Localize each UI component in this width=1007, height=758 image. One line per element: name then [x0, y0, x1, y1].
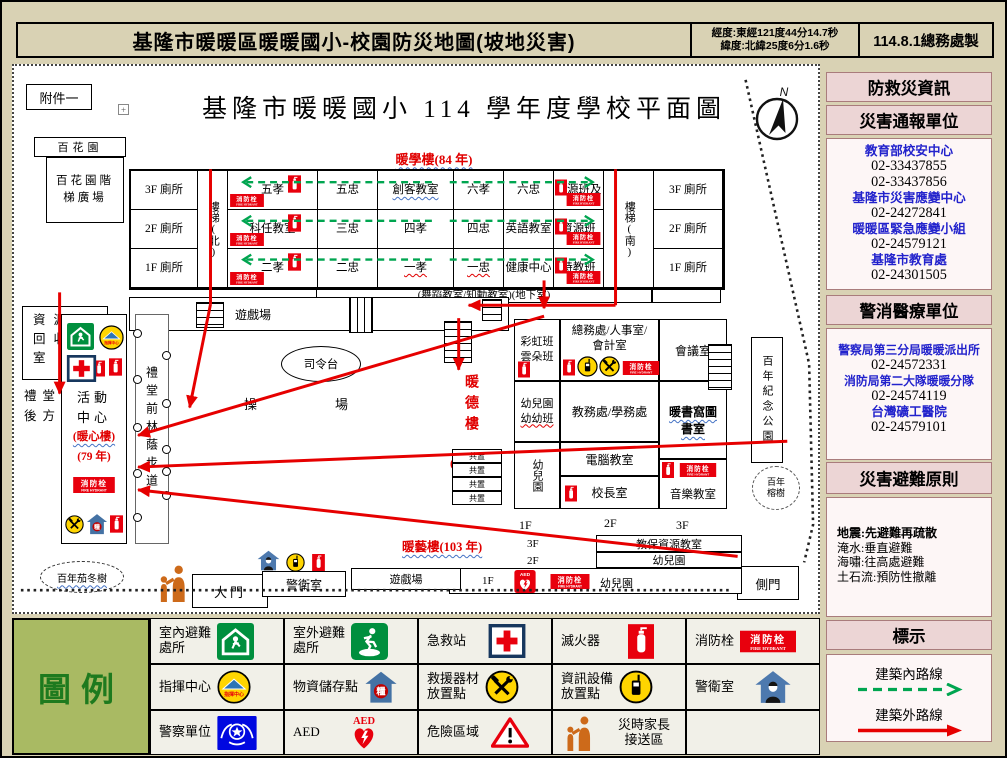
svg-text:FIRE HYDRANT: FIRE HYDRANT [236, 243, 258, 246]
indoor-route-icon [854, 683, 964, 696]
svg-text:FIRE HYDRANT: FIRE HYDRANT [750, 647, 787, 652]
info-equipment-icon [577, 356, 598, 377]
fire-hydrant-icon: 消防栓FIRE HYDRANT [549, 574, 591, 589]
legend-item: 消防栓消防栓FIRE HYDRANT [686, 618, 820, 664]
legend-item: 災時家長 接送區 [552, 710, 686, 755]
outdoor-shelter-icon [351, 623, 388, 660]
legend-label: 消防栓 [695, 634, 734, 649]
contact-phone: 02-24574119 [827, 389, 991, 405]
hall-back-line: 禮堂 [24, 386, 61, 406]
header-bar: 基隆市暖暖區暖暖國小-校園防災地圖(坡地災害) 經度:東經121度44分14.7… [16, 22, 994, 58]
room-box: 總務處/人事室/會計室 消防栓FIRE HYDRANT [560, 319, 659, 381]
legend-label: 室內避難 處所 [159, 626, 211, 655]
fire-extinguisher-icon [518, 361, 530, 378]
contact-name: 基隆市教育處 [827, 253, 991, 268]
stairs-icon [196, 302, 224, 328]
svg-text:FIRE HYDRANT: FIRE HYDRANT [236, 204, 258, 207]
activity-center-label: 中心 [62, 407, 126, 426]
stairs-icon [349, 297, 373, 333]
contact-name: 消防局第二大隊暖暖分隊 [827, 374, 991, 389]
legend-item: 滅火器 [552, 618, 686, 664]
fire-hydrant-icon: 消防栓FIRE HYDRANT [230, 194, 264, 207]
contact-name: 警察局第三分局暖暖派出所 [827, 343, 991, 358]
legend-item: AEDAED [284, 710, 418, 755]
room-label: 音樂教室 [660, 486, 726, 502]
principle-item: 淹水:垂直避難 [827, 541, 991, 556]
principle-item: 海嘯:往高處避難 [827, 555, 991, 570]
room-cell: 1F 廁所 [654, 249, 723, 288]
room-cell: 特教班 消防栓FIRE HYDRANT [554, 249, 604, 288]
fire-extinguisher-icon [109, 358, 122, 376]
fire-extinguisher-icon [565, 485, 577, 502]
svg-text:AED: AED [353, 716, 376, 727]
flower-garden-steps-label: 百花園階梯廣場 [46, 157, 124, 223]
outdoor-route-icon [854, 724, 964, 737]
side-gate-label: 側門 [737, 566, 799, 600]
room-box: 教務處/學務處 [560, 381, 659, 442]
building-nuanxue-label: 暖學樓(84 年) [364, 150, 504, 166]
supply-point-icon: 糧 [364, 670, 398, 704]
floor-label-3f: 3F [676, 518, 689, 533]
room-box: 校長室 [560, 476, 659, 509]
fire-extinguisher-icon [312, 554, 325, 571]
route-inside-label: 建築內路線 [827, 663, 991, 683]
page-frame: 基隆市暖暖區暖暖國小-校園防災地圖(坡地災害) 經度:東經121度44分14.7… [0, 0, 1007, 758]
svg-text:AED: AED [520, 572, 531, 578]
room-cell: 2F 廁所 [654, 210, 723, 249]
contact-name: 暖暖區緊急應變小組 [827, 222, 991, 237]
stairs-icon [482, 299, 502, 321]
svg-text:糧: 糧 [376, 686, 386, 697]
legend-item: 警衛室 [686, 664, 820, 710]
play-area2-label: 遊戲場 [351, 568, 461, 590]
nuanyi-2f-label: 2F [527, 555, 539, 567]
svg-text:FIRE HYDRANT: FIRE HYDRANT [573, 203, 595, 206]
police-unit-icon [217, 716, 257, 750]
fire-hydrant-icon: 消防栓FIRE HYDRANT [71, 477, 117, 493]
room-cell: 四孝 [378, 210, 454, 249]
command-center-icon: 指揮中心 [99, 325, 124, 350]
guard-room-icon [257, 550, 280, 571]
activity-center-nickname: (暖心樓) [62, 428, 126, 444]
shared-room-box: 共置 [452, 463, 502, 477]
responder-contact-list: 警察局第三分局暖暖派出所 02-24572331 消防局第二大隊暖暖分隊 02-… [826, 328, 992, 460]
room-cell: 1F 廁所 [131, 249, 198, 288]
legend-label: 物資儲存點 [293, 680, 358, 695]
room-cell: 3F 廁所 [131, 171, 198, 210]
room-label: 總務處/人事室/會計室 [561, 320, 658, 354]
indoor-shelter-icon [67, 323, 94, 350]
plan-title: 基隆市暖暖國小 114 學年度學校平面圖 [164, 90, 764, 124]
legend-label: 救援器材 放置點 [427, 672, 479, 701]
indoor-shelter-icon [217, 623, 254, 660]
page-title: 基隆市暖暖區暖暖國小-校園防災地圖(坡地災害) [18, 24, 690, 56]
svg-text:消防栓: 消防栓 [558, 576, 583, 585]
tree-path-strip: 禮堂前林蔭步道 [135, 314, 169, 544]
fire-extinguisher-icon [662, 462, 674, 478]
fire-hydrant-icon: 消防栓FIRE HYDRANT [230, 272, 264, 285]
anchor-icon: + [118, 104, 129, 115]
fire-extinguisher-icon [110, 515, 123, 533]
play-area-label: 遊戲場 [235, 306, 271, 323]
room-cell: 科任教室 消防栓FIRE HYDRANT [228, 210, 318, 249]
room-box: 電腦教室 [560, 442, 659, 476]
guard-room-icon [754, 670, 792, 704]
legend-label: 警察單位 [159, 725, 211, 740]
hall-back-line: 後方 [24, 406, 61, 426]
stage-label: 司令台 [281, 346, 361, 382]
nuanyi-3f-label: 3F [527, 538, 539, 550]
contact-phone: 02-33437855 [827, 159, 991, 175]
banyan-line: 榕樹 [767, 488, 785, 499]
command-center-icon: 指揮中心 [217, 670, 251, 704]
rescue-equipment-icon [65, 515, 84, 534]
room-cell: 2F 廁所 [131, 210, 198, 249]
fire-extinguisher-icon [288, 253, 301, 271]
section-report-units: 災害通報單位 [826, 105, 992, 135]
legend-item-empty [686, 710, 820, 755]
nuanyi-1f-box: 1F AED 消防栓FIRE HYDRANT 幼兒園 [449, 568, 742, 594]
contact-phone: 02-33437856 [827, 175, 991, 191]
svg-text:N: N [780, 85, 789, 99]
activity-center-label: 活動 [62, 387, 126, 406]
legend-label: 危險區域 [427, 725, 479, 740]
room-cell: 四忠 [454, 210, 504, 249]
room-label: 幼幼班 [521, 412, 554, 427]
attachment-label: 附件一 [26, 84, 92, 110]
aed-icon: AED [514, 570, 536, 593]
legend-label: 室外避難 處所 [293, 626, 345, 655]
nuanxue-building-table: 樓梯(北) 樓梯(南) 3F 廁所 五孝 消防栓FIRE HYDRANT 五忠 … [129, 169, 725, 290]
legend-label: 災時家長 接送區 [603, 718, 685, 747]
sidebar-title: 防救災資訊 [826, 72, 992, 102]
section-police-medical: 警消醫療單位 [826, 295, 992, 325]
svg-text:消防栓: 消防栓 [750, 633, 786, 646]
supply-point-icon: 糧 [86, 513, 108, 535]
activity-center-box: 指揮中心 活動 中心 (暖心樓) (79 年) 消防栓FIRE HYDRANT … [61, 314, 127, 544]
room-cell: 資源班及 消防栓FIRE HYDRANT [554, 171, 604, 210]
fire-hydrant-icon: 消防栓FIRE HYDRANT [740, 630, 796, 653]
contact-name: 台灣礦工醫院 [827, 405, 991, 420]
parent-pickup-icon [561, 715, 597, 751]
section-principles: 災害避難原則 [826, 462, 992, 494]
room-cell: 六忠 [504, 171, 554, 210]
building-nuanyi-label: 暖藝樓(103 年) [402, 536, 482, 555]
stairs-icon [444, 321, 472, 363]
centennial-park-label: 百年紀念公園 [751, 337, 783, 463]
fire-hydrant-icon: 消防栓FIRE HYDRANT [565, 232, 602, 245]
room-label: 五孝 [261, 184, 284, 196]
svg-text:消防栓: 消防栓 [686, 464, 709, 473]
room-cell: 健康中心 [504, 249, 554, 288]
contact-phone: 02-24301505 [827, 268, 991, 284]
legend-label: 急救站 [427, 634, 466, 649]
contact-phone: 02-24572331 [827, 358, 991, 374]
field-label: 操場 [244, 394, 426, 413]
svg-text:指揮中心: 指揮中心 [224, 691, 244, 698]
legend-label: 資訊設備 放置點 [561, 672, 613, 701]
info-equipment-icon [286, 553, 305, 572]
legend-item: 救援器材 放置點 [418, 664, 552, 710]
campus-map: 附件一 + 基隆市暖暖國小 114 學年度學校平面圖 N 百花園 百花園階梯廣場… [12, 64, 820, 614]
principle-item: 土石流:預防性撤離 [827, 570, 991, 585]
banyan-tree-label: 百年 榕樹 [752, 466, 800, 510]
legend-item: 急救站 [418, 618, 552, 664]
floor-label-1f: 1F [519, 518, 532, 533]
legend-label: 滅火器 [561, 634, 600, 649]
room-cell: 3F 廁所 [654, 171, 723, 210]
shared-room-box: 共置 [452, 449, 502, 463]
danger-zone-icon [491, 716, 529, 749]
legend-label: 指揮中心 [159, 680, 211, 695]
room-cell: 二忠 [318, 249, 378, 288]
room-label: 二孝 [261, 262, 284, 274]
stair-north: 樓梯(北) [198, 171, 228, 288]
rescue-equipment-icon [599, 356, 620, 377]
room-cell: 創客教室 [378, 171, 454, 210]
first-aid-icon [488, 624, 526, 658]
fire-extinguisher-icon [628, 624, 654, 659]
legend-item: 室內避難 處所 [150, 618, 284, 664]
main-gate-label: 大門 [192, 574, 268, 608]
contact-phone: 02-24579121 [827, 237, 991, 253]
legend-item: 警察單位 [150, 710, 284, 755]
credit-label: 114.8.1總務處製 [858, 24, 992, 56]
room-cell: 三忠 [318, 210, 378, 249]
kinder-2f-box: 幼兒園 [596, 552, 742, 568]
legend-label: 警衛室 [695, 680, 734, 695]
legend-title: 圖例 [12, 618, 150, 755]
contact-phone: 02-24272841 [827, 206, 991, 222]
coordinates-box: 經度:東經121度44分14.7秒 緯度:北緯25度6分1.6秒 [690, 24, 858, 56]
legend-item: 危險區域 [418, 710, 552, 755]
legend-item: 室外避難 處所 [284, 618, 418, 664]
fire-hydrant-icon: 消防栓FIRE HYDRANT [676, 463, 720, 477]
room-cell: 資源班 消防栓FIRE HYDRANT [554, 210, 604, 249]
room-cell: 二孝 消防栓FIRE HYDRANT [228, 249, 318, 288]
principles-list: 地震:先避難再疏散 淹水:垂直避難 海嘯:往高處避難 土石流:預防性撤離 [826, 497, 992, 617]
room-box: 幼兒園 幼幼班 [514, 381, 560, 442]
svg-text:FIRE HYDRANT: FIRE HYDRANT [236, 282, 258, 285]
room-box: 幼兒園 [514, 442, 560, 509]
fire-hydrant-icon: 消防栓FIRE HYDRANT [565, 193, 602, 206]
banyan-line: 百年 [767, 477, 785, 488]
legend-item: 指揮中心指揮中心 [150, 664, 284, 710]
legend-item: 資訊設備 放置點 [552, 664, 686, 710]
fire-extinguisher-icon [288, 175, 301, 193]
fire-hydrant-icon: 消防栓FIRE HYDRANT [565, 271, 602, 284]
fire-extinguisher-icon [288, 214, 301, 232]
route-legend: 建築內路線 建築外路線 [826, 654, 992, 742]
svg-text:FIRE HYDRANT: FIRE HYDRANT [558, 585, 582, 589]
svg-text:FIRE HYDRANT: FIRE HYDRANT [687, 473, 710, 477]
room-box: 暖書窩圖書室 [659, 381, 727, 459]
room-label: 校長室 [591, 484, 627, 501]
room-label: 彩虹班 [521, 335, 554, 350]
building-nuande-label: 暖德樓 [460, 374, 480, 446]
stair-south: 樓梯(南) [604, 171, 654, 288]
route-outside-label: 建築外路線 [827, 704, 991, 724]
svg-text:FIRE HYDRANT: FIRE HYDRANT [81, 488, 107, 492]
room-cell: 一孝 [378, 249, 454, 288]
contact-name: 教育部校安中心 [827, 144, 991, 159]
svg-text:消防栓: 消防栓 [81, 478, 107, 488]
room-cell: 一忠 [454, 249, 504, 288]
floor-label-2f: 2F [604, 516, 617, 531]
legend-label: AED [293, 725, 320, 740]
guard-room-label: 警衛室 [262, 571, 346, 597]
room-cell: 五孝 消防栓FIRE HYDRANT [228, 171, 318, 210]
coord-longitude: 經度:東經121度44分14.7秒 [712, 27, 839, 40]
svg-text:消防栓: 消防栓 [629, 362, 652, 371]
room-box: 彩虹班 雲朵班 [514, 319, 560, 381]
room-cell: 五忠 [318, 171, 378, 210]
principle-item: 地震:先避難再疏散 [827, 498, 991, 541]
fire-hydrant-icon: 消防栓FIRE HYDRANT [621, 361, 661, 375]
parent-pickup-icon [154, 564, 192, 602]
flower-garden-label: 百花園 [34, 137, 126, 157]
fire-extinguisher-icon [563, 359, 575, 376]
svg-text:FIRE HYDRANT: FIRE HYDRANT [573, 242, 595, 245]
coord-latitude: 緯度:北緯25度6分1.6秒 [720, 40, 829, 53]
activity-center-year: (79 年) [62, 448, 126, 464]
contact-name: 基隆市災害應變中心 [827, 191, 991, 206]
room-cell: 六孝 [454, 171, 504, 210]
fire-hydrant-icon: 消防栓FIRE HYDRANT [230, 233, 264, 246]
report-contact-list: 教育部校安中心 02-33437855 02-33437856 基隆市災害應變中… [826, 138, 992, 290]
rescue-equipment-icon [485, 670, 519, 704]
compass-icon: N [749, 84, 807, 144]
legend-item: 物資儲存點糧 [284, 664, 418, 710]
contact-phone: 02-24579101 [827, 420, 991, 436]
tree-path-label: 禮堂前林蔭步道 [144, 315, 161, 543]
room-box: 消防栓FIRE HYDRANT 音樂教室 [659, 459, 727, 509]
room-cell: 英語教室 [504, 210, 554, 249]
kinder-1f-label: 幼兒園 [600, 575, 633, 591]
aed-icon: AED [348, 714, 380, 751]
legend-grid: 室內避難 處所 室外避難 處所 急救站 滅火器 消防栓消防栓FIRE HYDRA… [150, 618, 820, 755]
room-label: 幼兒園 [521, 397, 554, 412]
care-room-box: 教保資源教室 [596, 535, 742, 552]
svg-text:指揮中心: 指揮中心 [104, 340, 119, 345]
nuanyi-1f-label: 1F [482, 575, 494, 587]
info-equipment-icon [619, 670, 653, 704]
svg-text:FIRE HYDRANT: FIRE HYDRANT [573, 281, 595, 284]
svg-text:糧: 糧 [94, 523, 100, 531]
shared-room-box: 共置 [452, 477, 502, 491]
shared-room-box: 共置 [452, 491, 502, 505]
first-aid-icon [66, 355, 97, 382]
old-tree-label: 百年茄冬樹 [40, 561, 124, 593]
stairs-icon [708, 344, 732, 390]
svg-text:FIRE HYDRANT: FIRE HYDRANT [630, 371, 653, 375]
section-marks: 標示 [826, 620, 992, 650]
info-sidebar: 防救災資訊 災害通報單位 教育部校安中心 02-33437855 02-3343… [824, 64, 996, 756]
